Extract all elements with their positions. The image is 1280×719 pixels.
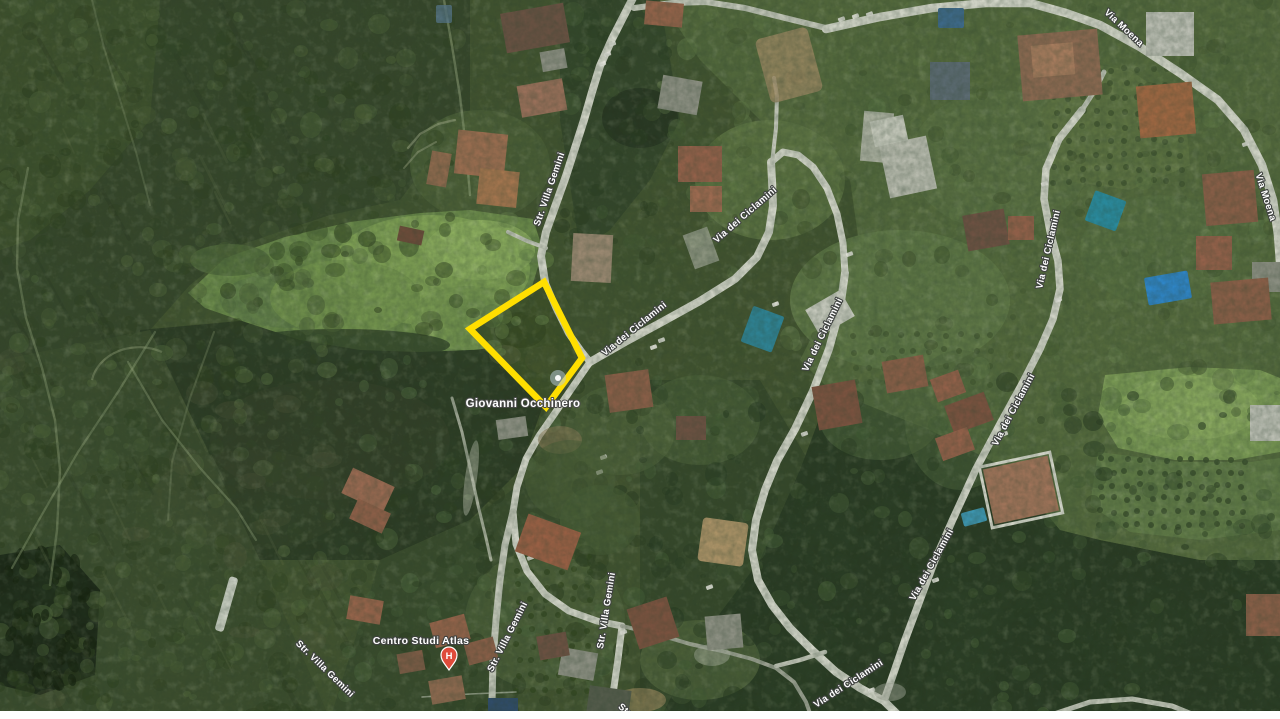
- svg-text:Giovanni Occhinero: Giovanni Occhinero: [466, 398, 581, 410]
- svg-text:Centro Studi Atlas: Centro Studi Atlas: [373, 635, 470, 647]
- svg-text:H: H: [446, 651, 453, 662]
